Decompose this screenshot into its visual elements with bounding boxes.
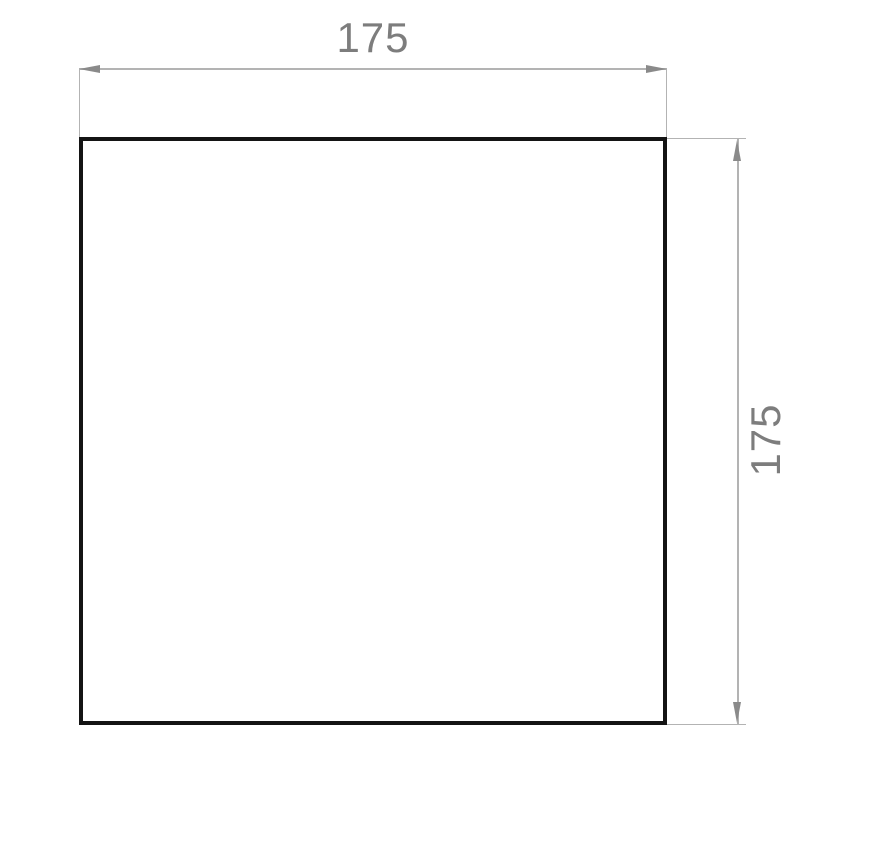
square-outline <box>79 137 667 725</box>
width-extension-line-right <box>666 69 668 137</box>
width-extension-line-left <box>79 69 81 137</box>
height-extension-line-top <box>667 138 746 140</box>
height-arrow-up-icon <box>733 140 741 161</box>
width-arrow-right-icon <box>646 65 667 73</box>
width-dimension-label: 175 <box>79 16 667 60</box>
height-dimension-label: 175 <box>726 390 806 490</box>
width-arrow-left-icon <box>79 65 100 73</box>
height-extension-line-bottom <box>667 724 746 726</box>
height-arrow-down-icon <box>733 702 741 723</box>
width-dimension-line <box>79 68 667 70</box>
drawing-canvas: 175 175 <box>0 0 884 853</box>
